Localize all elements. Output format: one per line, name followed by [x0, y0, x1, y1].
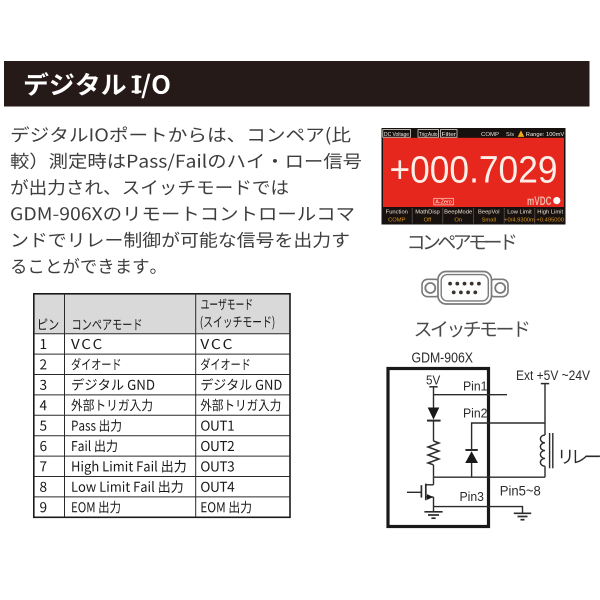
- svg-text:Off: Off: [424, 217, 432, 223]
- svg-text:GDM-906X: GDM-906X: [412, 351, 474, 367]
- svg-text:Pin5~8: Pin5~8: [500, 482, 541, 498]
- svg-text:Pin2: Pin2: [463, 405, 488, 420]
- svg-text:BeepVol: BeepVol: [478, 210, 500, 216]
- svg-text:Trig:Auto: Trig:Auto: [419, 132, 438, 138]
- svg-text:Small: Small: [482, 217, 497, 223]
- svg-text:DC Voltage: DC Voltage: [384, 132, 409, 138]
- svg-text:Range: 100mV: Range: 100mV: [526, 132, 565, 138]
- svg-text:Pin1: Pin1: [463, 379, 488, 394]
- svg-text:COMP: COMP: [481, 132, 499, 138]
- svg-text:S/s: S/s: [506, 132, 514, 138]
- svg-text:+0.495000: +0.495000: [536, 217, 564, 223]
- svg-text:+0/4.9300m: +0/4.9300m: [504, 217, 535, 223]
- svg-text:On: On: [454, 217, 462, 223]
- svg-text:mVDC: mVDC: [527, 196, 552, 208]
- svg-text:Ext +5V ~24V: Ext +5V ~24V: [516, 368, 590, 383]
- svg-text:COMP: COMP: [388, 217, 406, 223]
- svg-text:Pin3: Pin3: [460, 489, 485, 504]
- svg-text:5V: 5V: [426, 372, 440, 387]
- svg-text:+000.7029: +000.7029: [390, 150, 558, 192]
- svg-text:Function: Function: [386, 210, 408, 216]
- svg-text:Low Limit: Low Limit: [507, 210, 532, 216]
- svg-text:High Limit: High Limit: [537, 210, 563, 216]
- svg-text:BeepMode: BeepMode: [444, 210, 472, 216]
- svg-text:MathDisp: MathDisp: [415, 210, 439, 216]
- svg-text:Filter: Filter: [442, 132, 457, 138]
- svg-text:A-Zero: A-Zero: [435, 200, 452, 206]
